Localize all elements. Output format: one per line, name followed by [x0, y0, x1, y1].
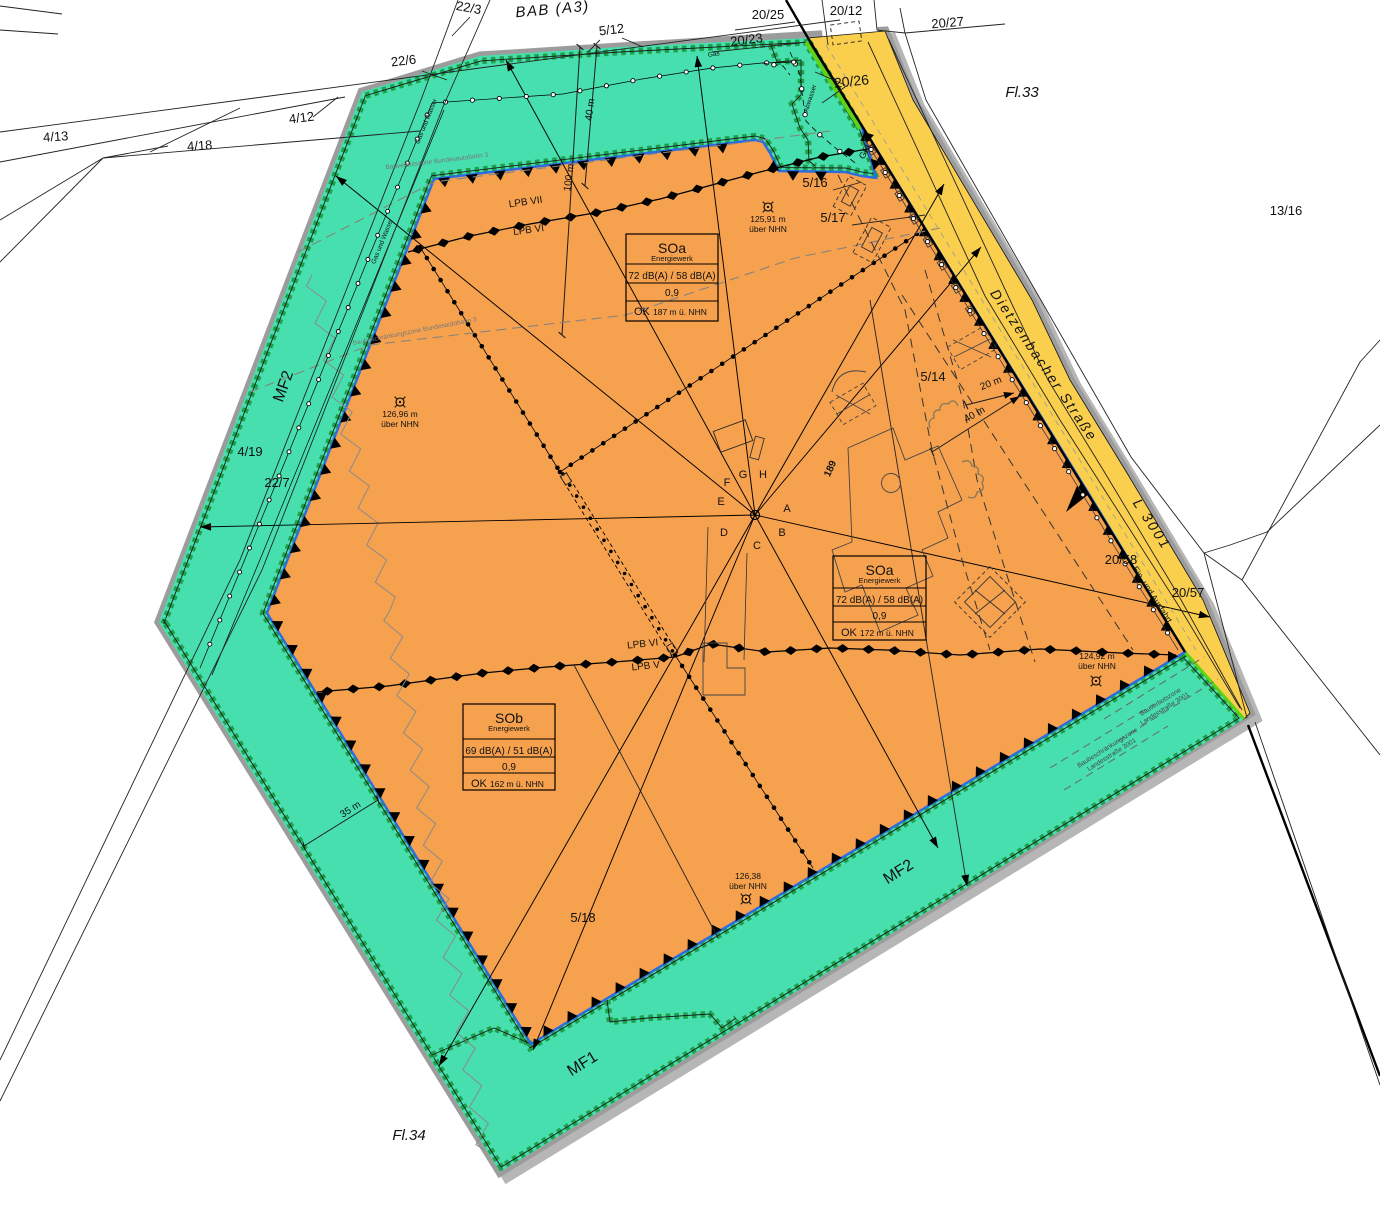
svg-text:20/58: 20/58: [1105, 552, 1138, 567]
svg-text:72 dB(A) / 58 dB(A): 72 dB(A) / 58 dB(A): [628, 271, 715, 282]
svg-text:5/14: 5/14: [920, 369, 945, 384]
svg-text:D: D: [720, 527, 728, 539]
svg-text:5/18: 5/18: [570, 910, 595, 925]
svg-text:über NHN: über NHN: [381, 419, 419, 429]
svg-text:124,92 m: 124,92 m: [1079, 651, 1114, 661]
svg-text:Fl.33: Fl.33: [1005, 84, 1039, 101]
svg-text:125,91 m: 125,91 m: [750, 214, 785, 224]
svg-text:13/16: 13/16: [1270, 203, 1303, 218]
svg-text:4/19: 4/19: [237, 444, 262, 459]
svg-text:4/18: 4/18: [187, 137, 213, 154]
svg-text:187 m ü. NHN: 187 m ü. NHN: [653, 307, 707, 317]
svg-text:E: E: [717, 496, 724, 508]
svg-text:5/12: 5/12: [598, 21, 625, 39]
svg-text:5/16: 5/16: [802, 175, 827, 190]
svg-text:C: C: [753, 540, 761, 552]
svg-text:20/12: 20/12: [830, 3, 863, 18]
svg-text:20/27: 20/27: [931, 14, 965, 32]
svg-text:Fl.34: Fl.34: [392, 1127, 425, 1144]
svg-text:20/25: 20/25: [752, 7, 785, 22]
svg-text:22/7: 22/7: [264, 475, 289, 490]
svg-text:20/57: 20/57: [1172, 585, 1205, 600]
svg-text:4/13: 4/13: [43, 128, 69, 145]
svg-text:126,38: 126,38: [735, 871, 761, 881]
svg-text:172 m ü. NHN: 172 m ü. NHN: [860, 628, 914, 638]
svg-text:über NHN: über NHN: [749, 224, 787, 234]
svg-text:OK: OK: [841, 627, 858, 639]
svg-text:Energiewerk: Energiewerk: [651, 254, 693, 263]
svg-text:22/6: 22/6: [390, 52, 417, 70]
svg-text:H: H: [759, 469, 767, 481]
svg-text:72 dB(A) / 58 dB(A): 72 dB(A) / 58 dB(A): [836, 595, 923, 606]
svg-text:0,9: 0,9: [665, 288, 679, 299]
svg-text:0,9: 0,9: [873, 611, 887, 622]
svg-text:126,96 m: 126,96 m: [382, 409, 417, 419]
svg-text:B: B: [778, 527, 785, 539]
svg-text:OK: OK: [634, 306, 651, 318]
svg-text:5/17: 5/17: [820, 210, 845, 225]
svg-text:OK: OK: [471, 778, 488, 790]
svg-text:69 dB(A) / 51 dB(A): 69 dB(A) / 51 dB(A): [465, 746, 552, 757]
svg-text:über NHN: über NHN: [1078, 661, 1116, 671]
svg-text:G: G: [739, 469, 748, 481]
svg-text:162 m ü. NHN: 162 m ü. NHN: [490, 779, 544, 789]
svg-text:über NHN: über NHN: [729, 881, 767, 891]
svg-text:Energiewerk: Energiewerk: [859, 576, 901, 585]
svg-text:A: A: [783, 503, 791, 515]
svg-text:4/12: 4/12: [288, 109, 315, 127]
svg-text:F: F: [724, 477, 731, 489]
svg-text:Energiewerk: Energiewerk: [488, 724, 530, 733]
svg-text:0,9: 0,9: [502, 762, 516, 773]
